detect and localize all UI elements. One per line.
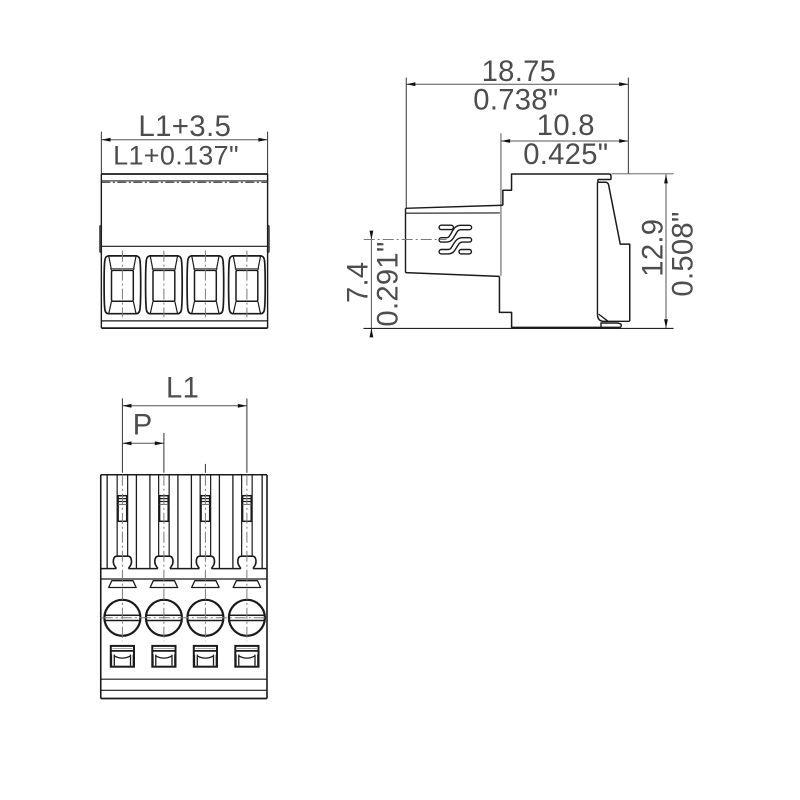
svg-text:L1+3.5: L1+3.5 xyxy=(138,110,231,143)
svg-text:12.9: 12.9 xyxy=(638,219,670,277)
svg-text:L1: L1 xyxy=(166,373,199,405)
svg-text:0.508": 0.508" xyxy=(667,211,699,296)
svg-text:L1+0.137": L1+0.137" xyxy=(113,140,239,170)
svg-text:0.291": 0.291" xyxy=(372,241,404,326)
svg-text:10.8: 10.8 xyxy=(537,110,595,142)
svg-text:7.4: 7.4 xyxy=(343,262,375,303)
svg-text:18.75: 18.75 xyxy=(482,56,557,88)
svg-text:0.425": 0.425" xyxy=(523,139,608,171)
svg-text:P: P xyxy=(133,410,153,442)
